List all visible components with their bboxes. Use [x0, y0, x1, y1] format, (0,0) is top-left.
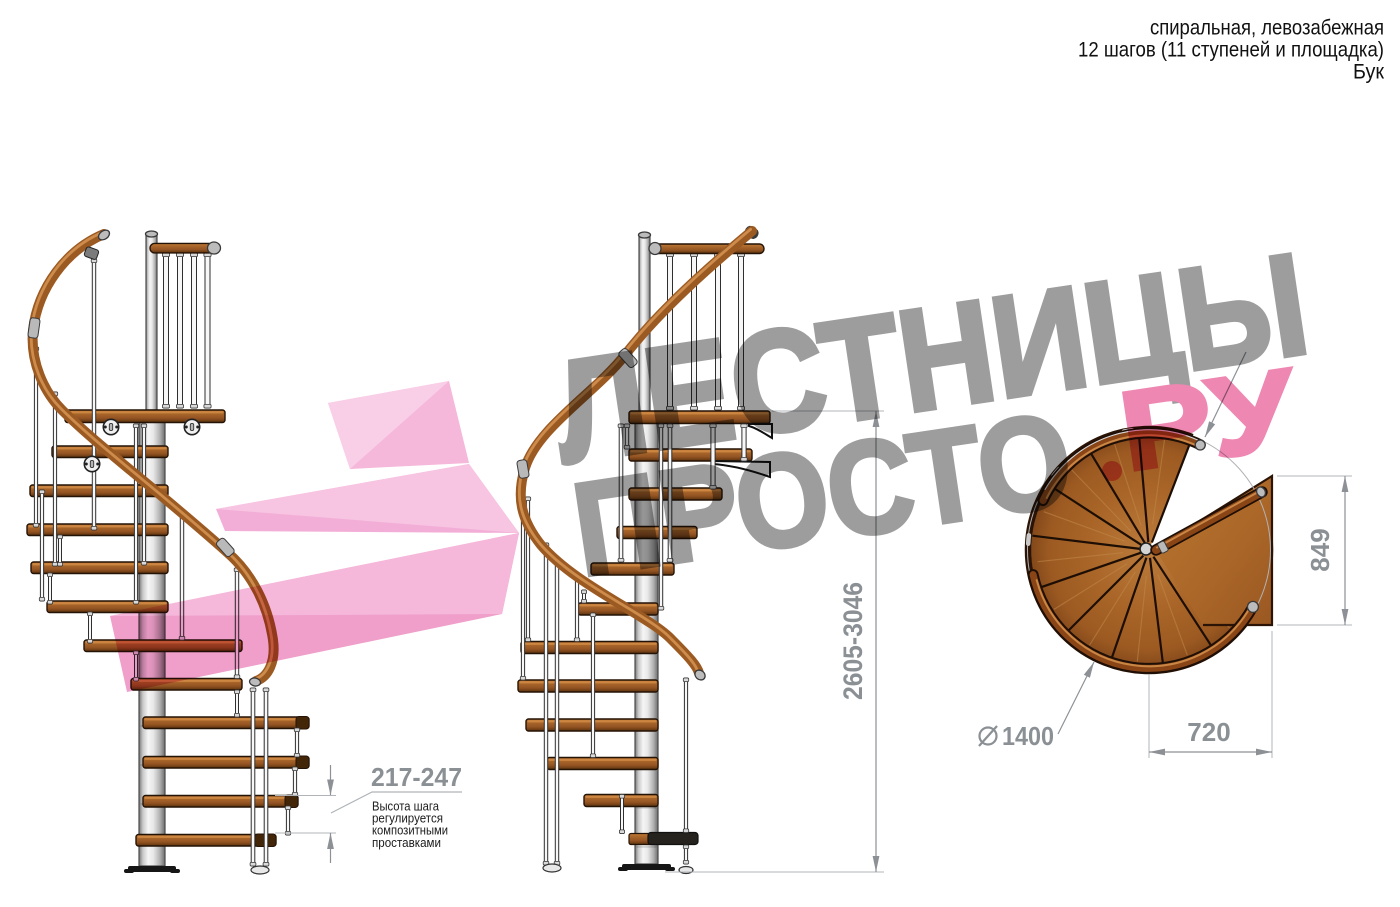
svg-text:2605-3046: 2605-3046 — [838, 582, 868, 700]
svg-text:720: 720 — [1187, 717, 1230, 747]
svg-text:РУ: РУ — [1112, 345, 1305, 495]
svg-text:проставками: проставками — [372, 835, 441, 850]
svg-text:Бук: Бук — [1353, 61, 1385, 84]
svg-text:1400: 1400 — [1002, 721, 1054, 751]
svg-text:849: 849 — [1305, 528, 1335, 571]
svg-text:217-247: 217-247 — [371, 762, 462, 792]
svg-text:12 шагов (11 ступеней и площад: 12 шагов (11 ступеней и площадка) — [1078, 39, 1384, 62]
svg-text:спиральная, левозабежная: спиральная, левозабежная — [1150, 17, 1384, 40]
